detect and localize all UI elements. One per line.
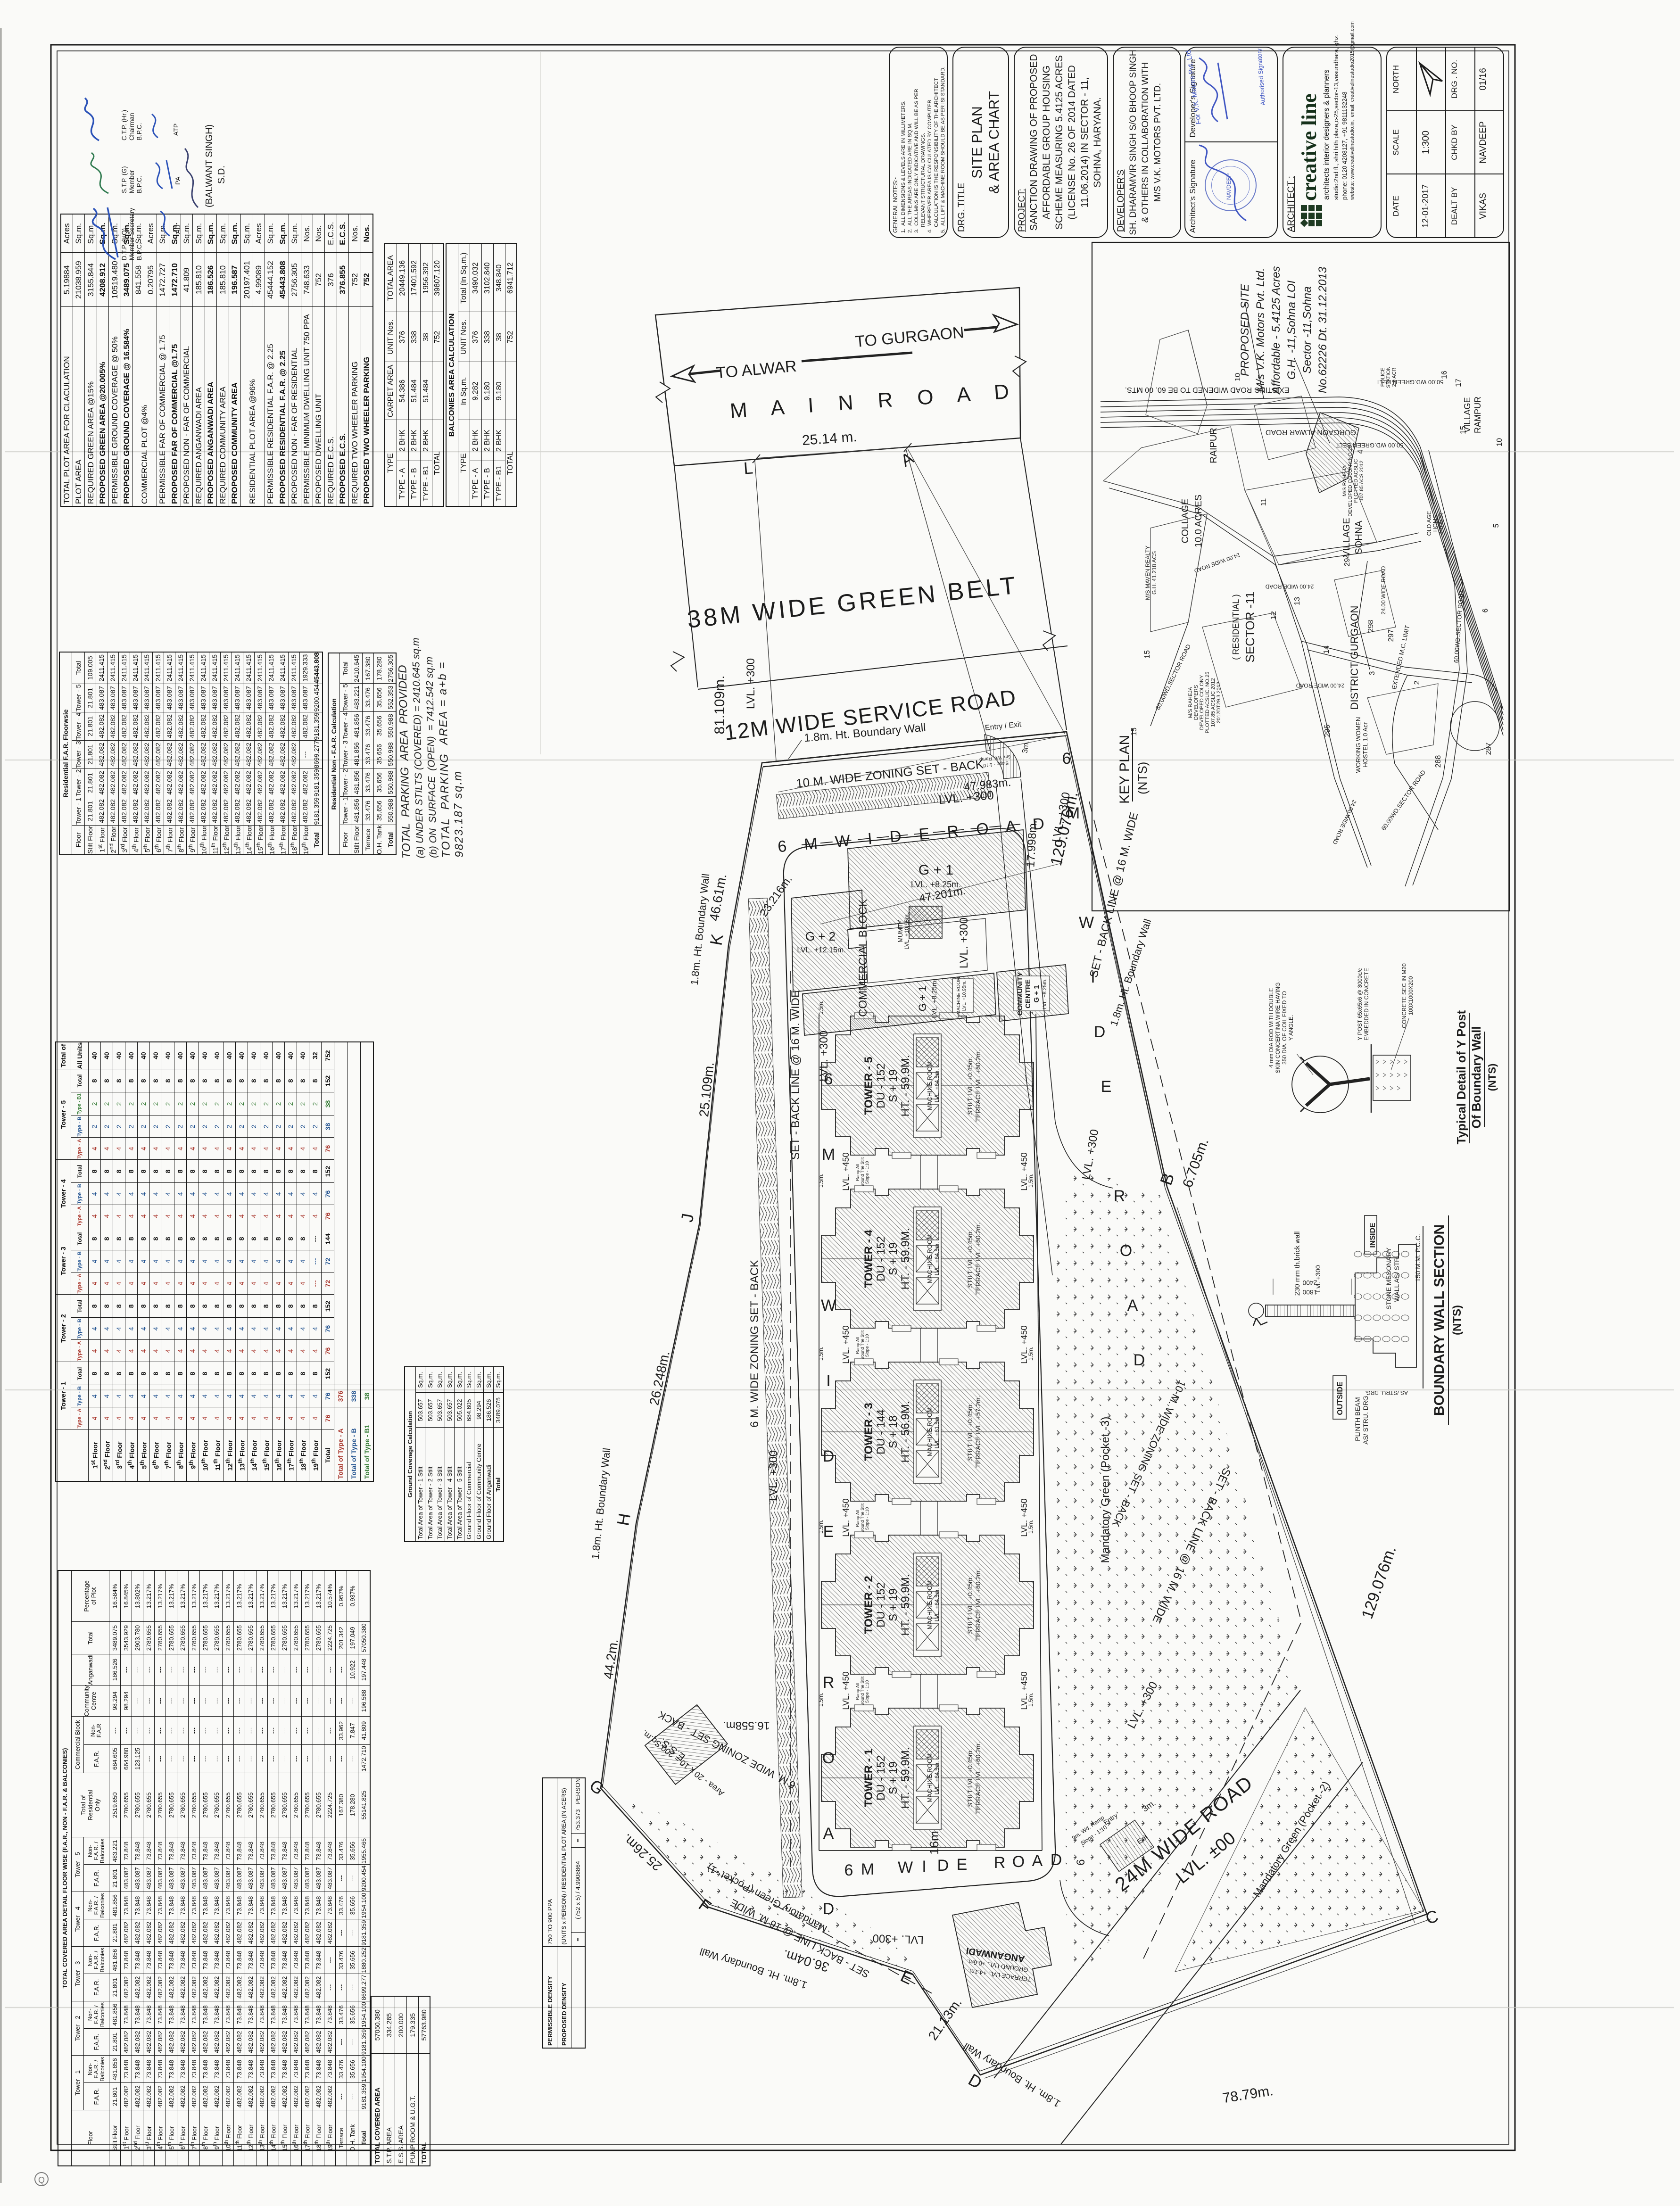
svg-text:C: C <box>1423 1906 1440 1928</box>
svg-text:AD: AD <box>174 225 182 234</box>
svg-text:PLOTTED ACSLIC: PLOTTED ACSLIC <box>1353 459 1359 503</box>
svg-text:Around The Stilt: Around The Stilt <box>860 1157 865 1188</box>
svg-text:KEY PLAN: KEY PLAN <box>1117 735 1133 804</box>
svg-text:Sector -11,Sohna: Sector -11,Sohna <box>1301 286 1314 373</box>
svg-text:R: R <box>823 1674 835 1692</box>
svg-text:MACHINE ROOM: MACHINE ROOM <box>926 1061 933 1110</box>
svg-text:LVL. +8.25m.: LVL. +8.25m. <box>1042 979 1048 1009</box>
svg-text:1.5m.: 1.5m. <box>818 1693 824 1707</box>
svg-text:M: M <box>861 1860 874 1878</box>
svg-text:4 mm DIA ROD WITH DOUBLE: 4 mm DIA ROD WITH DOUBLE <box>1268 988 1274 1067</box>
svg-text:M A I N R O A D: M A I N R O A D <box>729 380 1019 423</box>
svg-text:16.558m.: 16.558m. <box>723 1719 770 1732</box>
svg-text:11: 11 <box>1260 498 1268 506</box>
svg-text:Affordable - 5.4125 Acres: Affordable - 5.4125 Acres <box>1270 266 1283 395</box>
svg-text:S.T.P. (G): S.T.P. (G) <box>121 166 128 193</box>
svg-text:Entry / Exit: Entry / Exit <box>985 720 1022 732</box>
svg-text:17.998m.: 17.998m. <box>1024 820 1039 868</box>
svg-text:6: 6 <box>1481 608 1490 612</box>
svg-text:DEVELOPED COLONY NO.25: DEVELOPED COLONY NO.25 <box>1348 445 1353 516</box>
svg-text:LVL. +8.25m.: LVL. +8.25m. <box>911 880 961 889</box>
svg-text:LVL. +450: LVL. +450 <box>841 1671 851 1710</box>
svg-text:26.248m.: 26.248m. <box>646 1350 672 1407</box>
svg-text:LVL. +300: LVL. +300 <box>958 917 970 968</box>
svg-text:DISTRICT GURGAON: DISTRICT GURGAON <box>1349 606 1360 710</box>
svg-text:1.8m. Ht. Boundary Wall: 1.8m. Ht. Boundary Wall <box>1108 917 1153 1028</box>
svg-text:60.00WD.SECTOR ROAD: 60.00WD.SECTOR ROAD <box>1380 768 1427 832</box>
svg-text:Around The Stilt: Around The Stilt <box>860 1676 865 1707</box>
svg-text:(NTS): (NTS) <box>1486 1064 1498 1091</box>
svg-text:LVL. +300: LVL. +300 <box>767 1450 780 1501</box>
svg-text:150 M.M. P.C.C.: 150 M.M. P.C.C. <box>1414 1234 1422 1282</box>
svg-text:(BALWANT SINGH): (BALWANT SINGH) <box>204 124 215 207</box>
svg-text:STATION: STATION <box>1386 366 1391 388</box>
svg-text:J: J <box>677 1212 698 1223</box>
svg-text:HT. - 59.9M.: HT. - 59.9M. <box>899 1228 912 1290</box>
svg-text:6: 6 <box>1075 1859 1087 1865</box>
svg-text:D: D <box>1094 1023 1106 1041</box>
svg-text:Around The Stilt: Around The Stilt <box>860 1330 865 1361</box>
svg-text:CENTRE: CENTRE <box>1024 979 1032 1008</box>
svg-text:230 mm th.brick wall: 230 mm th.brick wall <box>1293 1231 1301 1296</box>
svg-text:24.00 WIDE ROAD: 24.00 WIDE ROAD <box>1296 682 1344 689</box>
svg-text:TERRACE LVL. +57.2m.: TERRACE LVL. +57.2m. <box>974 1396 982 1468</box>
svg-text:129.076m.: 129.076m. <box>1358 1544 1399 1621</box>
svg-text:AS/ STRU. DRG.: AS/ STRU. DRG. <box>1362 1394 1369 1444</box>
svg-text:STILT LVL. +0.45m.: STILT LVL. +0.45m. <box>966 1403 974 1461</box>
svg-text:25.14 m.: 25.14 m. <box>802 429 858 448</box>
svg-text:2012DT29.3.2012: 2012DT29.3.2012 <box>1216 682 1222 723</box>
svg-text:W: W <box>821 1297 836 1314</box>
svg-text:1.8m. Ht. Boundary Wall: 1.8m. Ht. Boundary Wall <box>589 1447 613 1560</box>
svg-text:6: 6 <box>1062 750 1071 768</box>
svg-text:HT. - 59.9M.: HT. - 59.9M. <box>899 1747 912 1809</box>
svg-text:MACHINE ROOM: MACHINE ROOM <box>926 1753 933 1802</box>
svg-text:TOWER - 4: TOWER - 4 <box>862 1230 875 1288</box>
svg-text:H: H <box>613 1512 634 1527</box>
svg-text:HT. - 59.9M.: HT. - 59.9M. <box>899 1055 912 1117</box>
svg-text:B: B <box>1156 1170 1178 1188</box>
svg-text:DU - 144: DU - 144 <box>875 1409 887 1454</box>
svg-text:4: 4 <box>1357 449 1365 454</box>
svg-text:RAMPUR: RAMPUR <box>1473 397 1482 433</box>
svg-text:MACHINE ROOM: MACHINE ROOM <box>956 977 961 1015</box>
svg-text:SKIN CONCERTINA WIRE HAVING: SKIN CONCERTINA WIRE HAVING <box>1274 983 1281 1074</box>
svg-text:298: 298 <box>1367 620 1375 633</box>
svg-text:1.5m.: 1.5m. <box>1027 1347 1034 1361</box>
svg-text:S + 19: S + 19 <box>887 1069 900 1102</box>
svg-text:1.5m.: 1.5m. <box>818 1347 824 1361</box>
svg-text:S + 18: S + 18 <box>887 1415 900 1448</box>
svg-text:For V.K. Motors Pvt. Ltd: For V.K. Motors Pvt. Ltd <box>1184 50 1203 124</box>
svg-text:LVL. +8.25m.: LVL. +8.25m. <box>930 979 938 1018</box>
svg-text:288: 288 <box>1434 755 1442 768</box>
svg-text:A: A <box>1032 1852 1043 1870</box>
svg-text:COLLAGE: COLLAGE <box>1180 499 1191 543</box>
svg-text:G + 1: G + 1 <box>1033 985 1041 1002</box>
svg-text:TERRACE LVL. +60.2m.: TERRACE LVL. +60.2m. <box>974 1742 982 1814</box>
svg-text:Member Secretary: Member Secretary <box>128 208 135 260</box>
svg-text:D.T.P. (HQ): D.T.P. (HQ) <box>121 228 128 260</box>
svg-text:PLOTTED ACSLIC. NO.25: PLOTTED ACSLIC. NO.25 <box>1205 672 1210 734</box>
svg-text:No.62226 Dt. 31.12.2013: No.62226 Dt. 31.12.2013 <box>1316 266 1329 393</box>
svg-text:I: I <box>1091 968 1095 986</box>
svg-text:LVL. +300: LVL. +300 <box>745 658 757 709</box>
svg-text:60.00WD.SECTOR ROAD: 60.00WD.SECTOR ROAD <box>1453 591 1465 663</box>
svg-text:S.D.: S.D. <box>216 165 227 184</box>
svg-text:Y ANGLE.: Y ANGLE. <box>1288 1015 1294 1041</box>
svg-text:( RESIDENTIAL ): ( RESIDENTIAL ) <box>1231 594 1241 660</box>
svg-text:LVL. +64.5m.: LVL. +64.5m. <box>934 1069 940 1103</box>
svg-text:38M WIDE GREEN BELT: 38M WIDE GREEN BELT <box>686 571 1019 633</box>
svg-text:HT. - 56.9M.: HT. - 56.9M. <box>899 1401 912 1463</box>
svg-text:100X1000X200: 100X1000X200 <box>1407 976 1414 1015</box>
svg-text:1.5m.: 1.5m. <box>1027 1693 1034 1707</box>
svg-text:Slope - 1:10: Slope - 1:10 <box>865 1334 869 1357</box>
svg-text:(NTS): (NTS) <box>1135 762 1150 794</box>
svg-text:LVL. +64.5m.: LVL. +64.5m. <box>934 1588 940 1622</box>
svg-text:Slope - 1:10: Slope - 1:10 <box>865 1680 869 1703</box>
svg-text:E: E <box>1101 1078 1112 1096</box>
svg-text:1.5m.: 1.5m. <box>818 1173 824 1188</box>
svg-text:6 M. WIDE ZONING SET - BACK: 6 M. WIDE ZONING SET - BACK <box>748 1260 761 1428</box>
svg-text:G.H. 41.218 ACS: G.H. 41.218 ACS <box>1151 551 1158 595</box>
svg-text:Member: Member <box>128 170 135 193</box>
svg-text:Lvl. +300: Lvl. +300 <box>1314 1265 1322 1292</box>
svg-text:TERRACE LVL. +60.2m.: TERRACE LVL. +60.2m. <box>974 1049 982 1122</box>
svg-text:78.79m.: 78.79m. <box>1221 2083 1274 2107</box>
svg-text:1.8m. Ht. Boundary Wall: 1.8m. Ht. Boundary Wall <box>688 873 712 986</box>
svg-text:OUTSIDE: OUTSIDE <box>1336 1381 1344 1415</box>
svg-text:15: 15 <box>1130 727 1138 736</box>
svg-text:BOUNDARY WALL SECTION: BOUNDARY WALL SECTION <box>1432 1224 1447 1416</box>
svg-text:PLINTH BEAM: PLINTH BEAM <box>1354 1397 1361 1441</box>
svg-text:HOME: HOME <box>1432 515 1439 532</box>
svg-text:M/S RAHEJA: M/S RAHEJA <box>1342 465 1348 496</box>
svg-text:S + 19: S + 19 <box>887 1761 900 1794</box>
svg-text:VILLAGE: VILLAGE <box>1341 518 1352 557</box>
svg-text:W: W <box>898 1859 913 1876</box>
svg-text:13: 13 <box>1293 597 1301 605</box>
svg-text:B.P.C.: B.P.C. <box>136 176 143 193</box>
svg-text:HOSTEL 1.0 Acr: HOSTEL 1.0 Acr <box>1362 722 1369 768</box>
svg-text:107.85 ACSLIC 2012: 107.85 ACSLIC 2012 <box>1210 678 1216 727</box>
svg-text:TERRACE LVL. +60.2m.: TERRACE LVL. +60.2m. <box>974 1223 982 1295</box>
svg-text:10.0 ACRES: 10.0 ACRES <box>1193 495 1204 547</box>
svg-text:STILT LVL. +0.45m.: STILT LVL. +0.45m. <box>966 1749 974 1807</box>
svg-text:Y POST 65x65x6 @ 3000c/c: Y POST 65x65x6 @ 3000c/c <box>1357 968 1363 1040</box>
svg-text:W: W <box>1079 914 1094 932</box>
svg-text:Ramp All: Ramp All <box>855 1337 860 1354</box>
svg-text:LVL. +61.5m.: LVL. +61.5m. <box>934 1415 940 1449</box>
svg-text:10: 10 <box>1496 438 1504 446</box>
svg-text:24.00 WIDE ROAD: 24.00 WIDE ROAD <box>1265 583 1314 590</box>
svg-text:350 DIA. OF COIL FIXED TO: 350 DIA. OF COIL FIXED TO <box>1281 991 1288 1065</box>
svg-text:ATP: ATP <box>172 124 180 136</box>
svg-text:LVL. +12.15m.: LVL. +12.15m. <box>797 946 845 954</box>
svg-text:MUMTY: MUMTY <box>897 920 904 942</box>
svg-text:D: D <box>965 2070 985 2093</box>
svg-text:23.216m.: 23.216m. <box>757 873 795 919</box>
svg-text:1.5m.: 1.5m. <box>818 1520 824 1534</box>
svg-text:5: 5 <box>1492 523 1500 528</box>
svg-text:294: 294 <box>1343 554 1351 567</box>
svg-text:25.109m.: 25.109m. <box>696 1061 717 1117</box>
svg-text:G + 1: G + 1 <box>917 986 928 1011</box>
svg-text:TOWER - 5: TOWER - 5 <box>862 1057 875 1115</box>
svg-text:2: 2 <box>1413 680 1421 685</box>
svg-text:TOWER - 2: TOWER - 2 <box>862 1576 875 1634</box>
svg-text:LVL. +10.95m.: LVL. +10.95m. <box>903 913 910 950</box>
svg-text:C.T.P. (Hr.): C.T.P. (Hr.) <box>121 110 128 140</box>
svg-text:INSIDE: INSIDE <box>1369 1223 1377 1248</box>
svg-text:17: 17 <box>1455 379 1463 387</box>
svg-text:STONE MESONARY: STONE MESONARY <box>1385 1247 1392 1309</box>
svg-text:MACHINE ROOM: MACHINE ROOM <box>926 1580 933 1629</box>
svg-text:3: 3 <box>1368 671 1376 675</box>
svg-text:LVL. +450: LVL. +450 <box>841 1498 851 1537</box>
svg-text:TERRACE LVL. +60.2m.: TERRACE LVL. +60.2m. <box>974 1569 982 1641</box>
svg-text:DU - 152: DU - 152 <box>875 1236 887 1281</box>
svg-text:(NTS): (NTS) <box>1451 1305 1464 1335</box>
svg-text:E: E <box>957 1856 968 1874</box>
svg-text:E: E <box>823 1523 834 1541</box>
svg-text:TOWER - 1: TOWER - 1 <box>862 1749 875 1807</box>
svg-text:LVL. +64.5m.: LVL. +64.5m. <box>934 1761 940 1795</box>
svg-text:HT. - 59.9M.: HT. - 59.9M. <box>899 1574 912 1636</box>
svg-text:6: 6 <box>844 1861 853 1879</box>
svg-text:6.705m.: 6.705m. <box>1180 1136 1212 1190</box>
svg-text:14: 14 <box>1323 645 1331 654</box>
svg-text:MACHINE ROOM: MACHINE ROOM <box>926 1234 933 1283</box>
svg-text:Authorised Signatory: Authorised Signatory <box>1256 48 1266 106</box>
svg-text:LVL. +64.5m.: LVL. +64.5m. <box>934 1242 940 1276</box>
svg-text:Typical Detail of Y Post: Typical Detail of Y Post <box>1454 1010 1468 1144</box>
svg-text:AS /STRU. DRG.: AS /STRU. DRG. <box>1365 1389 1408 1396</box>
svg-text:A: A <box>823 1825 834 1842</box>
svg-text:R: R <box>994 1854 1006 1872</box>
svg-text:Slope - 1:10: Slope - 1:10 <box>865 1507 869 1530</box>
svg-text:81.109m.: 81.109m. <box>712 675 728 734</box>
svg-text:15: 15 <box>1143 650 1151 659</box>
svg-text:POLICE: POLICE <box>1380 368 1386 387</box>
svg-text:Ramp All: Ramp All <box>855 1164 860 1181</box>
svg-text:24.00 WIDE ROAD: 24.00 WIDE ROAD <box>1193 552 1241 574</box>
svg-text:M/s V.K. Motors Pvt. Ltd.: M/s V.K. Motors Pvt. Ltd. <box>1254 268 1267 392</box>
svg-text:I: I <box>826 1372 830 1390</box>
svg-text:DU - 152: DU - 152 <box>875 1582 887 1628</box>
svg-text:STILT LVL. +0.45m.: STILT LVL. +0.45m. <box>966 1230 974 1288</box>
svg-text:Ramp All: Ramp All <box>855 1510 860 1527</box>
svg-text:TO ALWAR: TO ALWAR <box>715 357 797 382</box>
svg-text:Ramp All: Ramp All <box>855 1683 860 1700</box>
svg-text:1.5m.: 1.5m. <box>1027 1520 1034 1534</box>
svg-text:LVL. +10.95m.: LVL. +10.95m. <box>962 981 967 1011</box>
svg-text:3m.: 3m. <box>1021 740 1030 754</box>
svg-text:60.00WD.SECTOR ROAD: 60.00WD.SECTOR ROAD <box>1154 643 1192 711</box>
svg-text:10: 10 <box>1234 373 1242 381</box>
svg-text:M/S RAHEJA: M/S RAHEJA <box>1188 686 1193 718</box>
svg-text:16: 16 <box>1440 371 1448 379</box>
svg-text:287: 287 <box>1485 743 1493 755</box>
svg-text:DU - 152: DU - 152 <box>875 1755 887 1801</box>
svg-text:DEVELOPERS: DEVELOPERS <box>1193 685 1199 720</box>
svg-text:Slope - 1:10: Slope - 1:10 <box>865 1161 869 1184</box>
svg-text:2.0 ACR: 2.0 ACR <box>1391 367 1397 387</box>
svg-text:OLD AGE: OLD AGE <box>1426 511 1432 536</box>
svg-text:PROPOSED SITE: PROPOSED SITE <box>1239 283 1251 376</box>
svg-text:1.5m.: 1.5m. <box>1027 1173 1034 1188</box>
svg-text:MACHINE ROOM: MACHINE ROOM <box>926 1407 933 1456</box>
svg-text:D: D <box>937 1857 949 1875</box>
svg-text:SOHNA: SOHNA <box>1354 521 1364 554</box>
svg-text:Of Boundary Wall: Of Boundary Wall <box>1469 1026 1483 1128</box>
svg-text:CONCRETE SEC IN M20: CONCRETE SEC IN M20 <box>1401 963 1407 1028</box>
svg-text:1.0 ACR: 1.0 ACR <box>1438 512 1445 534</box>
svg-text:Mandatory Green (Pocket -3): Mandatory Green (Pocket -3) <box>1099 1417 1112 1563</box>
svg-text:12: 12 <box>1270 611 1278 620</box>
svg-text:M/S MAVEN REALTY: M/S MAVEN REALTY <box>1144 545 1151 600</box>
svg-text:SECTOR -11: SECTOR -11 <box>1243 592 1257 663</box>
svg-text:D: D <box>1051 1851 1062 1869</box>
svg-text:15: 15 <box>1459 426 1467 434</box>
svg-text:Chairman: Chairman <box>128 113 135 140</box>
svg-text:S + 19: S + 19 <box>887 1588 900 1621</box>
svg-text:G.H. -11,Sohna LOI: G.H. -11,Sohna LOI <box>1285 281 1298 380</box>
svg-text:DEVELOPED COLONY: DEVELOPED COLONY <box>1199 675 1205 730</box>
svg-text:STILT LVL. +0.45m.: STILT LVL. +0.45m. <box>966 1576 974 1634</box>
svg-text:STILT LVL. +0.45m.: STILT LVL. +0.45m. <box>966 1057 974 1115</box>
svg-text:PA: PA <box>174 176 182 185</box>
svg-text:DU - 152: DU - 152 <box>875 1063 887 1108</box>
svg-text:B.P.C.: B.P.C. <box>136 243 143 260</box>
svg-text:G + 2: G + 2 <box>805 929 836 943</box>
svg-text:B.P.C.: B.P.C. <box>136 123 143 140</box>
svg-text:Around The Stilt: Around The Stilt <box>860 1503 865 1534</box>
svg-text:O: O <box>1012 1853 1025 1871</box>
svg-text:LVL. +450: LVL. +450 <box>841 1152 851 1190</box>
svg-text:RAIPUR: RAIPUR <box>1208 428 1219 463</box>
svg-text:LVL. +450: LVL. +450 <box>841 1325 851 1363</box>
svg-text:L: L <box>743 458 754 478</box>
svg-text:K: K <box>706 932 727 947</box>
svg-text:TOWER - 3: TOWER - 3 <box>862 1403 875 1461</box>
svg-text:S + 19: S + 19 <box>887 1242 900 1275</box>
svg-text:WORKING WOMEN: WORKING WOMEN <box>1355 717 1362 773</box>
svg-text:TO GURGAON: TO GURGAON <box>854 323 965 351</box>
svg-text:24.00 WIDE ROAD: 24.00 WIDE ROAD <box>1380 566 1387 614</box>
svg-text:295: 295 <box>1324 725 1332 737</box>
svg-text:M: M <box>822 1146 835 1164</box>
svg-text:I: I <box>922 1858 926 1876</box>
svg-text:107.85 ACS 2012: 107.85 ACS 2012 <box>1359 461 1365 501</box>
svg-text:G + 1: G + 1 <box>919 862 953 878</box>
svg-text:297: 297 <box>1387 629 1395 642</box>
svg-text:EMBEDDED IN CONCRETE: EMBEDDED IN CONCRETE <box>1363 968 1370 1041</box>
svg-text:WALL AS/ STR.: WALL AS/ STR. <box>1393 1256 1400 1302</box>
